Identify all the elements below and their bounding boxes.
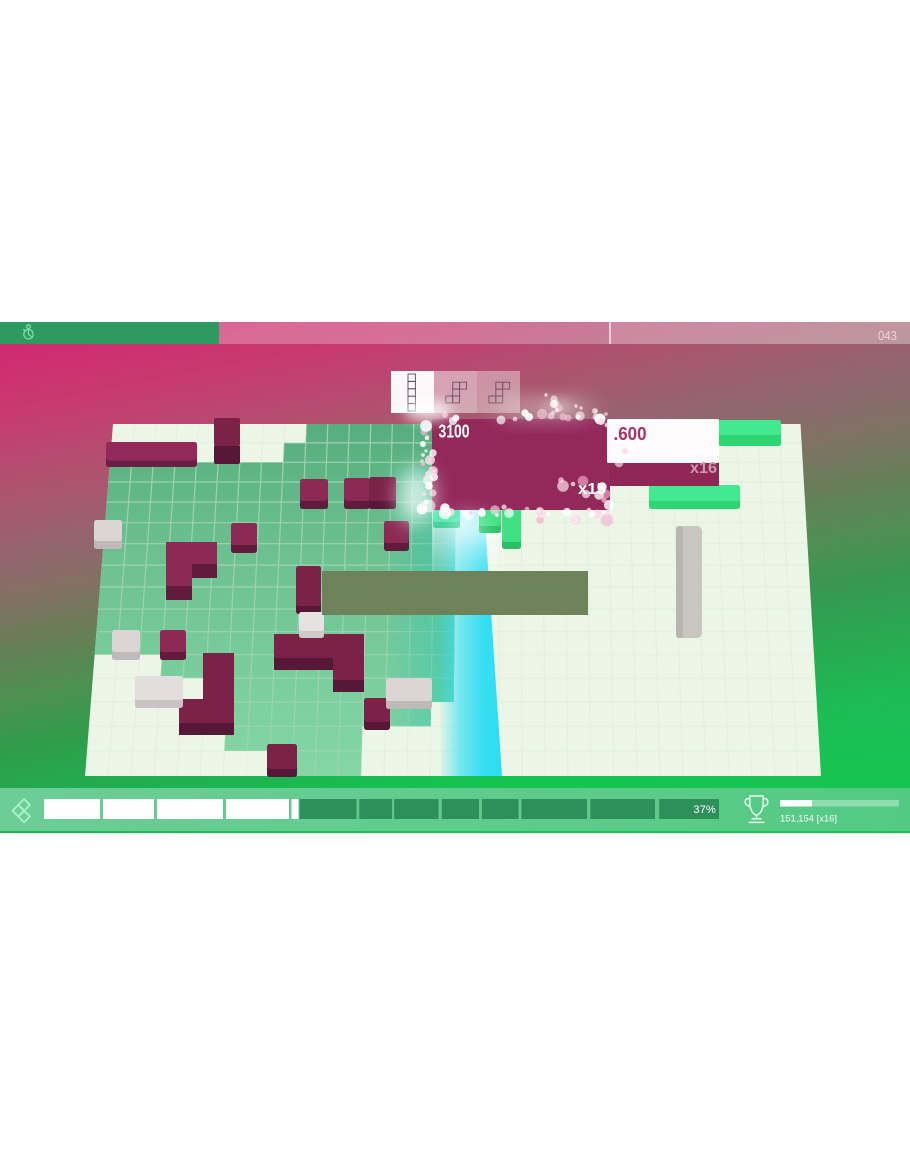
svg-text:3100: 3100 [439,421,470,442]
svg-text:37%: 37% [693,804,716,816]
svg-text:151,154 [x16]: 151,154 [x16] [780,814,837,824]
svg-text:x16: x16 [690,460,717,477]
svg-text:043: 043 [878,329,897,343]
svg-text:x15: x15 [578,481,606,498]
svg-text:.600: .600 [614,423,647,444]
